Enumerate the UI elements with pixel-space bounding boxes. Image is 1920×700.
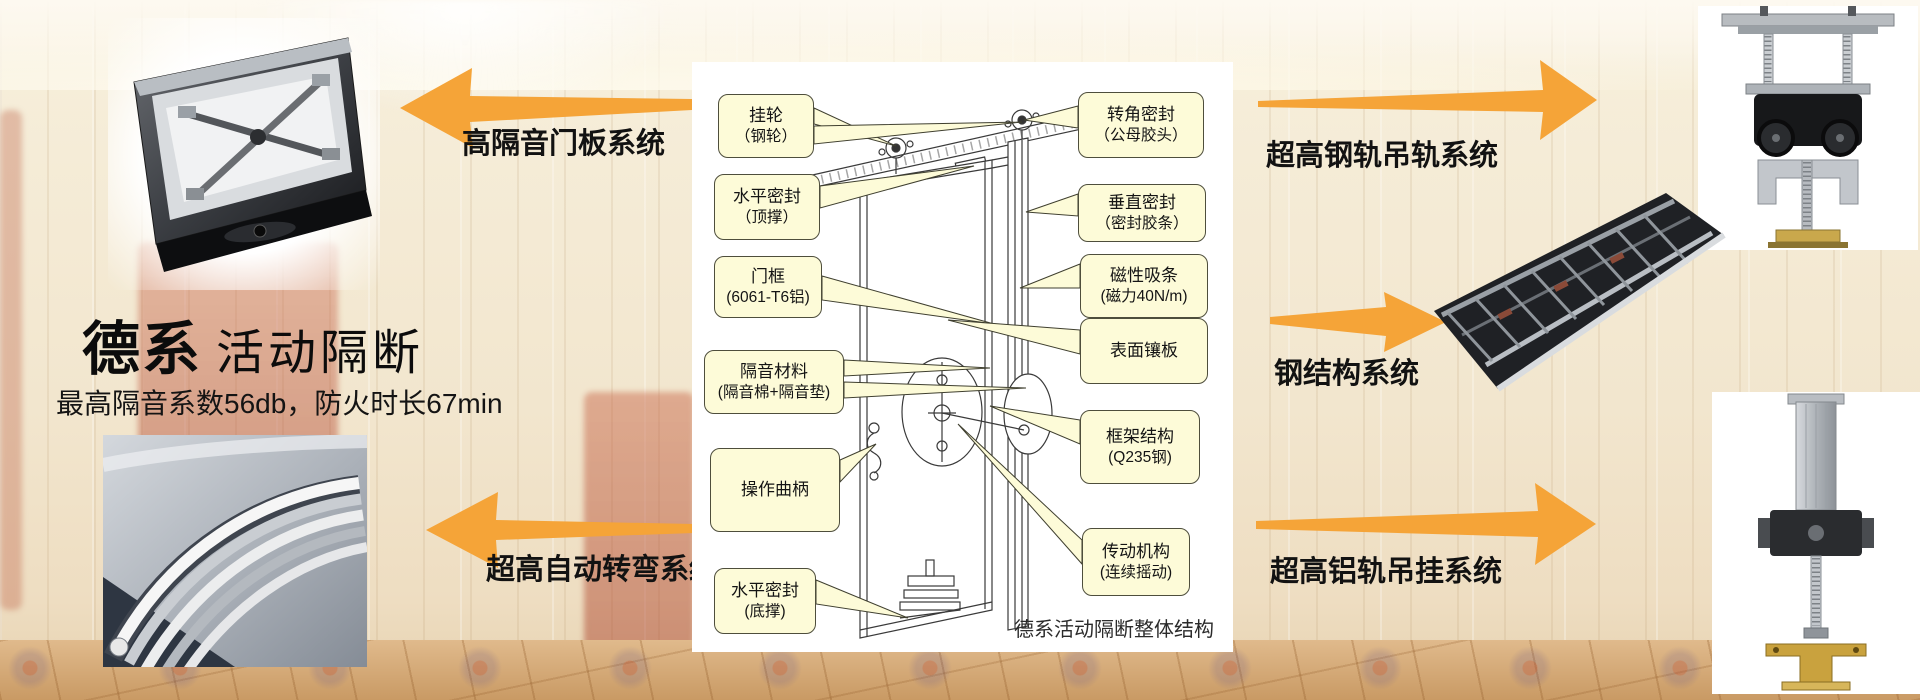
callout-text: 门框 xyxy=(751,266,785,288)
callout-horizontal-seal-top: 水平密封 （顶撑） xyxy=(714,174,820,240)
title-product: 活动隔断 xyxy=(216,327,424,380)
callout-text: 传动机构 xyxy=(1102,541,1170,563)
callout-sound-insulation: 隔音材料 (隔音棉+隔音垫) xyxy=(704,350,844,414)
photo-aluminum-track-hanger xyxy=(1712,392,1920,694)
callout-text: 水平密封 xyxy=(731,580,799,602)
callout-subtext: （钢轮） xyxy=(735,127,797,147)
photo-steel-frame xyxy=(1428,183,1728,398)
photo-curved-track xyxy=(103,435,367,667)
callout-subtext: (6061-T6铝) xyxy=(726,288,810,308)
callout-subtext: (底撑) xyxy=(744,602,785,622)
callout-magnetic-strip: 磁性吸条 (磁力40N/m) xyxy=(1080,254,1208,318)
callout-text: 操作曲柄 xyxy=(741,479,809,501)
callout-transmission: 传动机构 (连续摇动) xyxy=(1082,528,1190,596)
callout-text: 水平密封 xyxy=(733,186,801,208)
page-title: 德系活动隔断 xyxy=(82,302,424,386)
callout-frame-structure: 框架结构 (Q235钢) xyxy=(1080,410,1200,484)
callout-subtext: （顶撑） xyxy=(736,208,798,228)
callout-text: 表面镶板 xyxy=(1110,340,1178,362)
door-top-mechanism-illustration xyxy=(108,18,380,290)
curved-track-illustration xyxy=(103,435,367,667)
callout-text: 磁性吸条 xyxy=(1110,265,1178,287)
callout-vertical-seal: 垂直密封 （密封胶条） xyxy=(1078,184,1206,242)
red-partition-wall-center xyxy=(584,392,694,650)
aluminum-track-hanger-illustration xyxy=(1712,392,1920,694)
system-label-steel-rail: 超高钢轨吊轨系统 xyxy=(1266,132,1498,174)
system-label-auto-turning: 超高自动转弯系统 xyxy=(486,546,718,588)
red-partition-wall-edge xyxy=(0,110,22,610)
system-label-aluminum-rail: 超高铝轨吊挂系统 xyxy=(1270,548,1502,590)
diagram-panel: 挂轮 （钢轮） 水平密封 （顶撑） 门框 (6061-T6铝) 隔音材料 (隔音… xyxy=(692,62,1233,652)
callout-text: 垂直密封 xyxy=(1108,192,1176,214)
photo-steel-rail-trolley xyxy=(1698,6,1918,250)
callout-subtext: (磁力40N/m) xyxy=(1101,287,1188,307)
callout-subtext: (连续摇动) xyxy=(1100,563,1172,583)
callout-subtext: （密封胶条） xyxy=(1095,214,1188,234)
callout-subtext: （公母胶头） xyxy=(1094,126,1187,146)
callout-surface-panel: 表面镶板 xyxy=(1080,318,1208,384)
system-label-steel-structure: 钢结构系统 xyxy=(1274,350,1419,392)
callout-corner-seal: 转角密封 （公母胶头） xyxy=(1078,92,1204,158)
callout-operating-crank: 操作曲柄 xyxy=(710,448,840,532)
callout-text: 框架结构 xyxy=(1106,426,1174,448)
callout-hanging-wheel: 挂轮 （钢轮） xyxy=(718,94,814,158)
callout-door-frame: 门框 (6061-T6铝) xyxy=(714,256,822,318)
callout-text: 转角密封 xyxy=(1107,104,1175,126)
slide-stage: 德系活动隔断 最高隔音系数56db，防火时长67min xyxy=(0,0,1920,700)
page-subtitle: 最高隔音系数56db，防火时长67min xyxy=(56,382,503,422)
steel-rail-trolley-illustration xyxy=(1698,6,1918,250)
steel-frame-illustration xyxy=(1428,183,1728,398)
callout-subtext: (Q235钢) xyxy=(1108,448,1172,468)
callout-text: 挂轮 xyxy=(749,105,783,127)
diagram-caption: 德系活动隔断整体结构 xyxy=(1014,613,1214,642)
title-brand: 德系 xyxy=(82,317,202,382)
system-label-door-panel: 高隔音门板系统 xyxy=(462,120,665,162)
callout-subtext: (隔音棉+隔音垫) xyxy=(718,383,830,403)
photo-door-panel-top-mechanism xyxy=(108,18,380,290)
callout-horizontal-seal-bottom: 水平密封 (底撑) xyxy=(714,568,816,634)
callout-text: 隔音材料 xyxy=(740,361,808,383)
